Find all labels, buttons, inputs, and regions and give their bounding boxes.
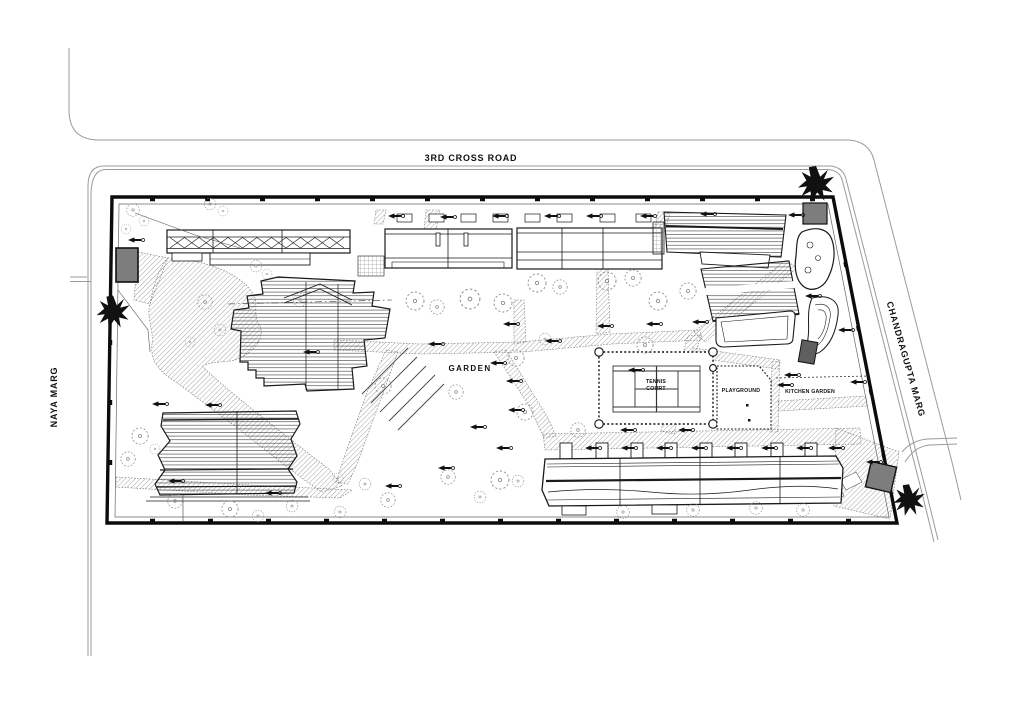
building-mid-north-b (517, 228, 662, 269)
road-label-left: NAYA MARG (49, 367, 59, 428)
gate-southeast (865, 461, 896, 492)
porch-planter-row (397, 214, 651, 222)
kitchen-garden-label: KITCHEN GARDEN (785, 389, 835, 395)
black-tree-icon (893, 484, 925, 516)
tennis-court: TENNIS COURT (595, 348, 717, 428)
garden-label: GARDEN (448, 364, 491, 373)
building-long-south (542, 443, 843, 515)
road-3rd-cross (69, 48, 874, 196)
ramp-grid (358, 256, 384, 276)
utility-block (798, 340, 818, 364)
building-louver-northeast (653, 212, 786, 268)
tennis-court-label-1: TENNIS (646, 379, 667, 385)
building-truss-block (167, 230, 350, 265)
road-label-right: CHANDRAGUPTA MARG (885, 300, 928, 418)
gate-northeast (803, 203, 827, 224)
road-label-top: 3RD CROSS ROAD (425, 153, 518, 163)
gate-west (116, 248, 138, 282)
building-mid-north-a (385, 229, 512, 268)
tennis-court-label-2: COURT (646, 386, 666, 392)
site-plan-sheet: 3RD CROSS ROAD NAYA MARG CHANDRAGUPTA MA… (0, 0, 1024, 724)
road-naya-marg (70, 184, 91, 656)
site-plan-drawing: 3RD CROSS ROAD NAYA MARG CHANDRAGUPTA MA… (0, 0, 1024, 724)
playground-label: PLAYGROUND (722, 388, 760, 394)
rock-garden (795, 229, 834, 290)
swimming-pool (716, 311, 795, 347)
black-tree-icon (97, 296, 130, 329)
building-hourglass-south (146, 411, 310, 521)
playground-area: PLAYGROUND (717, 366, 771, 429)
